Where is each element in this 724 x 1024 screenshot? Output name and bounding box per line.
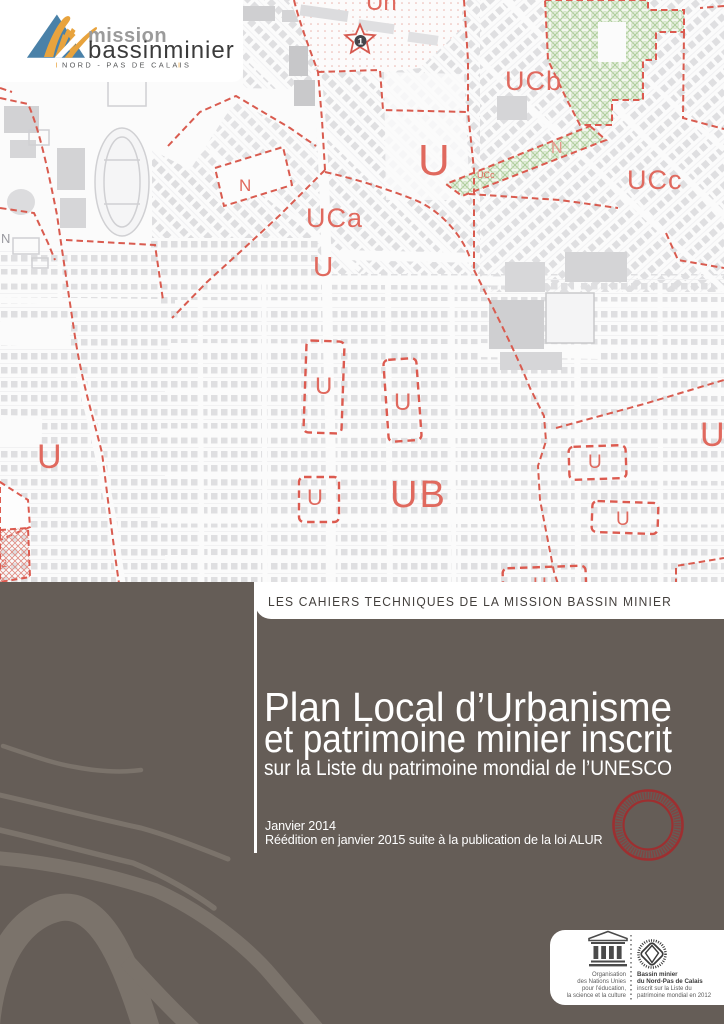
svg-text:N: N xyxy=(551,140,563,157)
svg-text:des Nations Unies: des Nations Unies xyxy=(577,979,626,985)
svg-text:I: I xyxy=(178,61,180,70)
svg-text:U: U xyxy=(418,136,450,185)
svg-text:UB: UB xyxy=(390,474,447,516)
svg-text:et patrimoine minier inscrit: et patrimoine minier inscrit xyxy=(264,718,672,761)
svg-text:LES CAHIERS TECHNIQUES DE LA M: LES CAHIERS TECHNIQUES DE LA MISSION BAS… xyxy=(268,595,672,609)
svg-text:UCb: UCb xyxy=(505,66,562,96)
svg-text:U: U xyxy=(616,509,630,530)
svg-text:du Nord-Pas de Calais: du Nord-Pas de Calais xyxy=(637,978,703,985)
svg-text:UCa: UCa xyxy=(306,203,363,233)
svg-text:Organisation: Organisation xyxy=(592,972,626,978)
svg-text:I: I xyxy=(56,61,58,70)
svg-text:1: 1 xyxy=(358,37,364,48)
svg-text:UCc: UCc xyxy=(477,170,495,180)
svg-text:N: N xyxy=(1,231,10,246)
svg-text:Uh: Uh xyxy=(366,0,397,16)
svg-text:U: U xyxy=(315,373,332,400)
svg-text:U: U xyxy=(37,438,62,476)
svg-text:U: U xyxy=(700,416,724,454)
svg-text:la science et la culture: la science et la culture xyxy=(567,993,627,999)
svg-text:NORD - PAS DE CALAIS: NORD - PAS DE CALAIS xyxy=(62,61,191,70)
svg-text:pour l’éducation,: pour l’éducation, xyxy=(582,986,626,992)
svg-text:Bassin minier: Bassin minier xyxy=(637,971,678,978)
svg-text:2: 2 xyxy=(1,558,7,570)
svg-text:UCc: UCc xyxy=(627,165,683,195)
svg-text:U: U xyxy=(307,485,323,510)
svg-text:U: U xyxy=(394,389,411,416)
svg-text:inscrit sur la Liste du: inscrit sur la Liste du xyxy=(637,986,692,992)
svg-text:U: U xyxy=(588,452,602,473)
svg-text:sur la Liste du patrimoine mon: sur la Liste du patrimoine mondial de l’… xyxy=(264,757,672,780)
svg-text:N: N xyxy=(239,176,251,195)
svg-text:patrimoine mondial en 2012: patrimoine mondial en 2012 xyxy=(637,993,712,999)
svg-text:U: U xyxy=(313,251,333,282)
